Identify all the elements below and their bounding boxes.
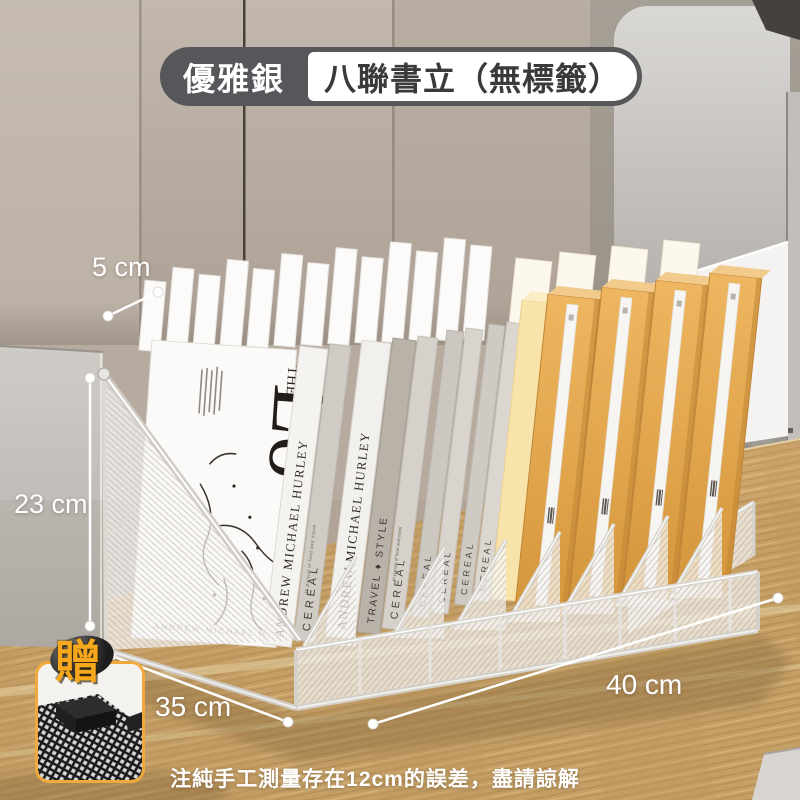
frame-ball-joint [98, 368, 110, 380]
measure-label-bottom-right: 40 cm [606, 669, 682, 701]
measure-label-top: 5 cm [92, 252, 151, 283]
product-name-label: 八聯書立（無標籤） [324, 54, 621, 100]
disclaimer-caption: 注純手工測量存在12cm的誤差，盡請諒解 [60, 763, 690, 793]
product-screenshot: THE Lo ANDREW MICHAEL HURLEY ANDREW MICH… [0, 0, 800, 800]
color-option-label: 優雅銀 [160, 54, 308, 100]
title-badge: 優雅銀 八聯書立（無標籤） [160, 47, 642, 106]
measure-label-bottom-left: 35 cm [155, 691, 231, 723]
measure-label-left: 23 cm [14, 489, 88, 520]
product-name-segment: 八聯書立（無標籤） [308, 52, 637, 101]
gift-badge: 贈 [55, 626, 101, 692]
